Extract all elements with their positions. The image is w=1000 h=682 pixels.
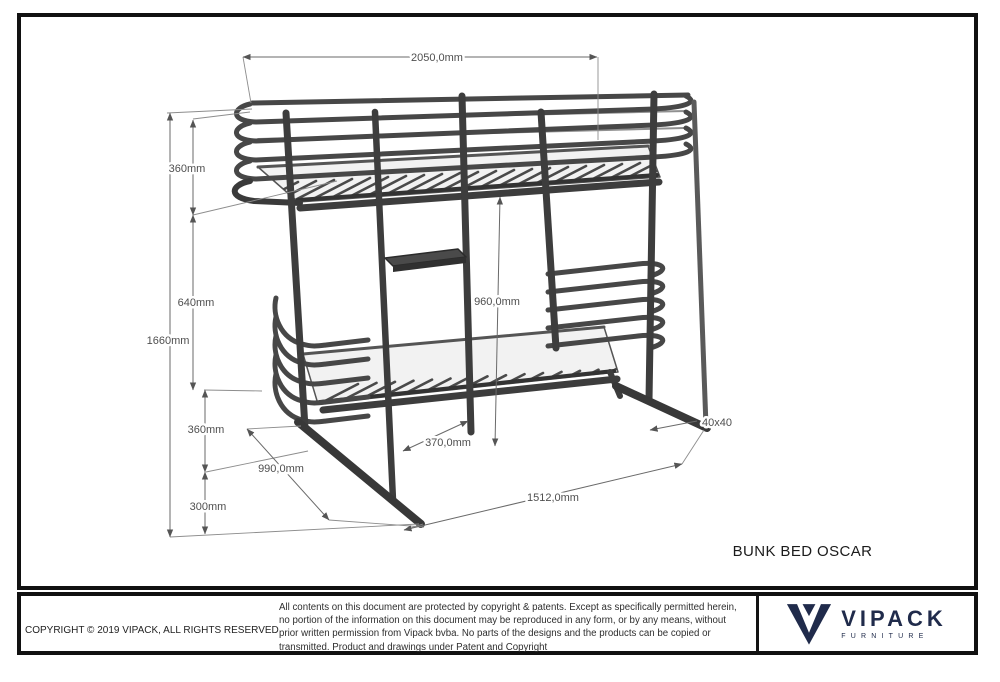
dim-inner-height: 960,0mm bbox=[474, 197, 520, 446]
drawing-sheet: 2050,0mm 1660mm 360mm 640mm 360mm bbox=[0, 0, 1000, 682]
dimension-label: 360mm bbox=[188, 424, 225, 436]
dimension-label: 40x40 bbox=[702, 417, 732, 429]
vipack-logo-icon bbox=[786, 602, 832, 645]
dim-bunk-gap: 640mm bbox=[178, 215, 215, 390]
dim-lower-rail-height: 360mm bbox=[188, 390, 225, 472]
brand-logo-block: VIPACK FURNITURE bbox=[756, 596, 974, 651]
dimension-label: 960,0mm bbox=[474, 296, 520, 308]
dimension-label: 2050,0mm bbox=[411, 52, 463, 64]
copyright-text: COPYRIGHT © 2019 VIPACK, ALL RIGHTS RESE… bbox=[21, 596, 273, 651]
dimension-label: 640mm bbox=[178, 297, 215, 309]
dim-top-rail-height: 360mm bbox=[169, 120, 206, 215]
legal-line: prior written permission from Vipack bvb… bbox=[279, 627, 748, 640]
dim-ladder-width: 370,0mm bbox=[403, 421, 471, 451]
brand-name: VIPACK bbox=[841, 608, 947, 630]
dim-under-clearance: 300mm bbox=[190, 472, 227, 534]
legal-line: All contents on this document are protec… bbox=[279, 601, 748, 614]
brand-tagline: FURNITURE bbox=[841, 633, 928, 640]
legal-line: no portion of the information on this do… bbox=[279, 614, 748, 627]
bunk-bed-technical-drawing: 2050,0mm 1660mm 360mm 640mm 360mm bbox=[0, 0, 1000, 682]
dimension-label: 990,0mm bbox=[258, 463, 304, 475]
bunk-bed bbox=[232, 94, 748, 524]
title-block: COPYRIGHT © 2019 VIPACK, ALL RIGHTS RESE… bbox=[17, 592, 978, 655]
brand-text: VIPACK FURNITURE bbox=[841, 608, 947, 640]
dim-runner-span: 1512,0mm bbox=[404, 464, 682, 530]
legal-line: transmitted. Product and drawings under … bbox=[279, 641, 748, 654]
ladder-step bbox=[385, 249, 466, 272]
dimension-label: 300mm bbox=[190, 501, 227, 513]
dimension-label: 1512,0mm bbox=[527, 492, 579, 504]
dimension-label: 370,0mm bbox=[425, 437, 471, 449]
dimension-label: 1660mm bbox=[147, 335, 190, 347]
drawing-title: BUNK BED OSCAR bbox=[695, 543, 910, 560]
dim-overall-height: 1660mm bbox=[147, 113, 190, 537]
legal-notice: All contents on this document are protec… bbox=[273, 596, 756, 651]
dimension-label: 360mm bbox=[169, 163, 206, 175]
dim-overall-length: 2050,0mm bbox=[243, 52, 597, 64]
